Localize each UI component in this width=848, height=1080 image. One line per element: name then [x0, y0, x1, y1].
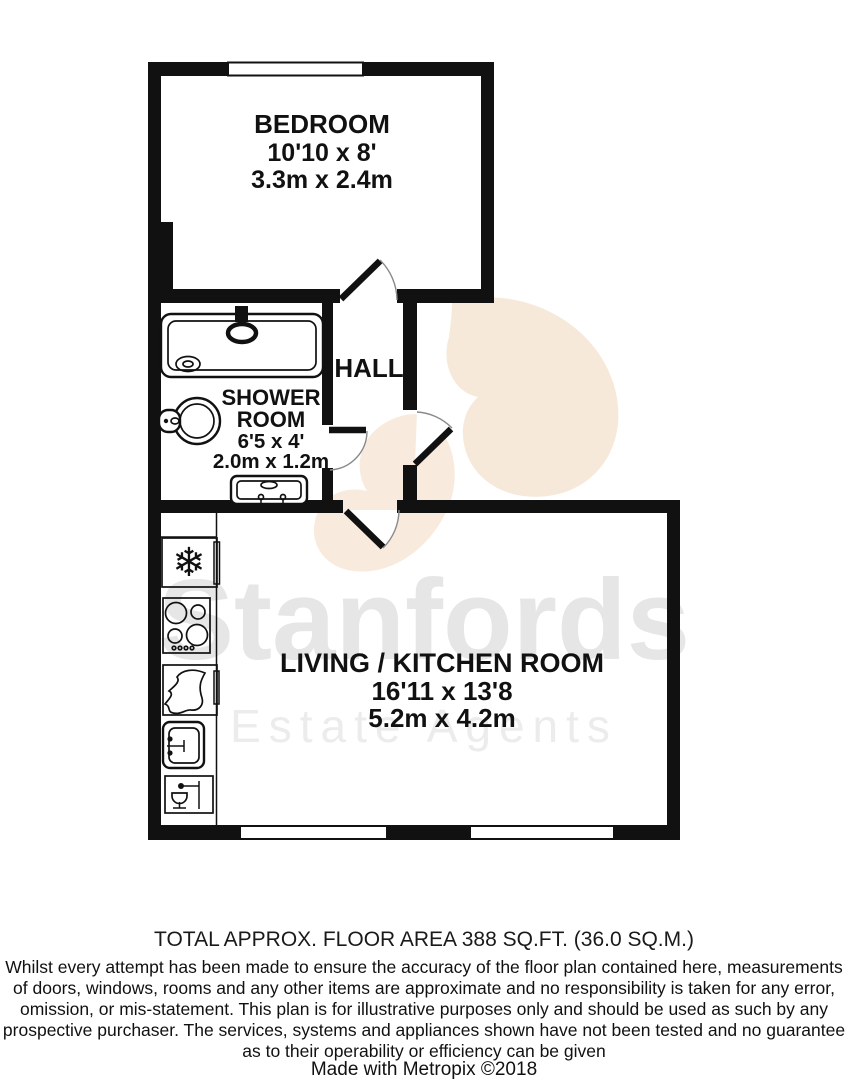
bedroom-window: [228, 63, 363, 76]
disclaimer-line-4: prospective purchaser. The services, sys…: [3, 1020, 845, 1040]
shower-head-icon: [228, 324, 256, 342]
wall-living-right: [667, 500, 680, 840]
wall-bedroom-right: [481, 62, 494, 303]
living-kitchen-dims-imperial: 16'11 x 13'8: [371, 676, 512, 706]
living-window-1: [240, 826, 387, 839]
living-kitchen-dims-metric: 5.2m x 4.2m: [368, 703, 515, 733]
disclaimer-line-2: of doors, windows, rooms and any other i…: [13, 978, 835, 998]
wine-glass-icon: [165, 776, 213, 813]
hall-label: HALL: [334, 353, 403, 383]
wall-shower-left: [148, 303, 161, 513]
basin-tap-icon: [159, 410, 180, 432]
living-window-2: [470, 826, 614, 839]
bath-icon: [161, 306, 323, 377]
toilet-icon: [231, 476, 307, 504]
shower-room-label-line2: ROOM: [237, 407, 305, 432]
bedroom-dims-imperial: 10'10 x 8': [267, 139, 376, 167]
disclaimer-line-5: as to their operability or efficiency ca…: [242, 1041, 606, 1061]
disclaimer-line-3: omission, or mis-statement. This plan is…: [20, 999, 828, 1019]
wall-bedroom-bottom-right: [397, 289, 494, 303]
living-kitchen-label: LIVING / KITCHEN ROOM: [280, 648, 604, 678]
wall-hall-right-upper: [403, 303, 417, 410]
bedroom-label: BEDROOM: [254, 109, 390, 139]
wall-bedroom-bottom-left: [148, 289, 340, 303]
floorplan-page: Stanfords Estate Agents: [0, 0, 848, 1080]
bedroom-dims-metric: 3.3m x 2.4m: [251, 166, 393, 194]
kitchen-sink-icon: [163, 722, 204, 768]
disclaimer-line-1: Whilst every attempt has been made to en…: [5, 957, 843, 977]
shower-room-dims-metric: 2.0m x 1.2m: [213, 450, 329, 473]
shower-arm-icon: [235, 306, 248, 322]
snowflake-icon: ❄: [172, 540, 206, 586]
basin-icon: [159, 398, 220, 444]
wall-living-left: [148, 500, 161, 840]
wall-living-top-right: [397, 500, 680, 513]
floor-plan-figure: Stanfords Estate Agents: [0, 0, 848, 1080]
credit-text: Made with Metropix ©2018: [311, 1059, 537, 1080]
total-area-text: TOTAL APPROX. FLOOR AREA 388 SQ.FT. (36.…: [154, 928, 694, 951]
